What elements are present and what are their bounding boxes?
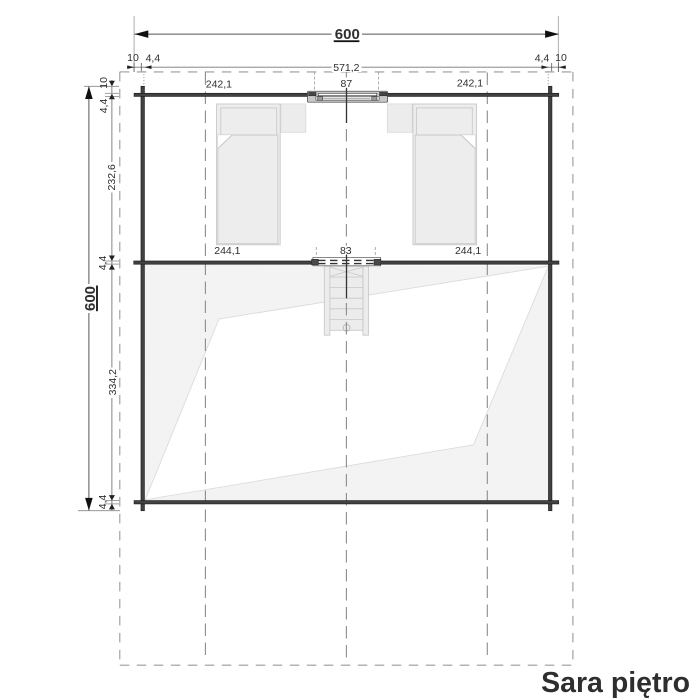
svg-text:242,1: 242,1 [206,79,232,91]
svg-text:334,2: 334,2 [107,369,119,395]
svg-text:242,1: 242,1 [457,78,483,90]
svg-text:4,4: 4,4 [97,256,109,271]
svg-text:4,4: 4,4 [146,52,161,64]
svg-text:4,4: 4,4 [97,494,109,509]
svg-text:232,6: 232,6 [106,164,118,190]
svg-text:10: 10 [98,77,110,89]
svg-text:244,1: 244,1 [214,245,240,257]
svg-text:244,1: 244,1 [455,245,481,257]
svg-text:87: 87 [341,78,353,90]
svg-text:4,4: 4,4 [535,52,550,64]
svg-text:10: 10 [555,52,567,64]
svg-text:10: 10 [127,52,139,64]
svg-text:4,4: 4,4 [98,99,110,114]
svg-text:571,2: 571,2 [333,62,359,74]
svg-text:83: 83 [340,245,352,257]
svg-text:Sara piętro: Sara piętro [541,667,690,699]
